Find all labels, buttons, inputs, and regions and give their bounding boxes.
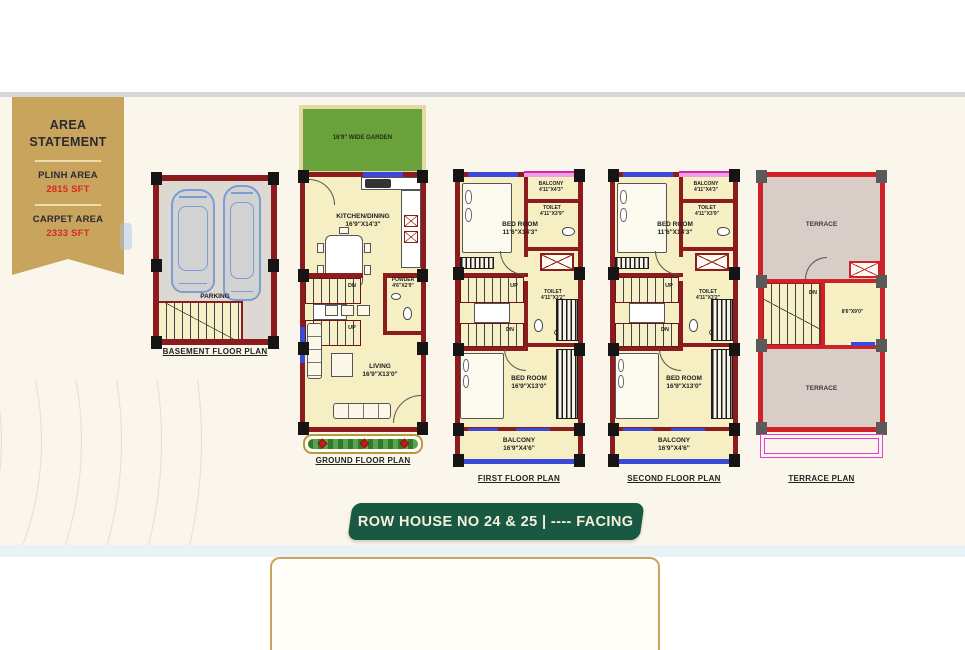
basement-floor-plan: PARKING 16'9"X21'0" bbox=[153, 175, 277, 345]
stairs-landing bbox=[629, 303, 665, 323]
up-label: UP bbox=[661, 283, 677, 289]
wardrobe bbox=[556, 299, 578, 341]
pillow bbox=[618, 359, 624, 372]
window-strip bbox=[468, 172, 518, 177]
balcony-railing bbox=[679, 171, 733, 177]
up-label: UP bbox=[506, 283, 522, 289]
car bbox=[171, 189, 215, 293]
window-strip bbox=[671, 428, 705, 431]
sink-unit bbox=[404, 231, 418, 243]
pillow bbox=[463, 359, 469, 372]
banner-text: ROW HOUSE NO 24 & 25 | ---- FACING bbox=[358, 514, 633, 530]
balcony-edge bbox=[610, 459, 738, 464]
car-hood-line bbox=[231, 192, 253, 194]
wardrobe bbox=[615, 257, 649, 269]
wardrobe bbox=[711, 299, 733, 341]
pillow bbox=[620, 190, 627, 204]
second-floor-plan: BALCONY 4'11"X4'3" TOILET 4'11"X3'9" BED… bbox=[610, 172, 738, 464]
partition-wall bbox=[528, 343, 578, 347]
cushion bbox=[341, 305, 354, 316]
brochure-page: AREA STATEMENT PLINH AREA 2815 SFT CARPE… bbox=[0, 0, 965, 650]
column bbox=[417, 269, 428, 282]
column bbox=[417, 342, 428, 355]
ground-plan-label: GROUND FLOOR PLAN bbox=[300, 456, 426, 465]
column bbox=[268, 259, 279, 272]
pillow bbox=[465, 190, 472, 204]
column bbox=[608, 343, 619, 356]
column bbox=[608, 267, 619, 280]
bedroom-label: BED ROOM 16'9"X13'0" bbox=[494, 375, 564, 392]
toilet-wc bbox=[562, 227, 575, 236]
column bbox=[151, 259, 162, 272]
column bbox=[756, 339, 767, 352]
car-cabin bbox=[230, 202, 254, 279]
door-arc bbox=[655, 251, 679, 275]
partition-wall bbox=[683, 247, 733, 251]
column bbox=[574, 343, 585, 356]
column bbox=[729, 343, 740, 356]
stairs-landing bbox=[474, 303, 510, 323]
toilet-wc bbox=[689, 319, 698, 332]
stairs bbox=[159, 301, 243, 339]
toilet-wc bbox=[717, 227, 730, 236]
window-strip bbox=[516, 428, 550, 431]
garden-label: 16'9" WIDE GARDEN bbox=[303, 135, 422, 141]
terrace-plan-label: TERRACE PLAN bbox=[758, 474, 885, 483]
terrace-label: TERRACE bbox=[763, 385, 880, 393]
car-trunk-line bbox=[231, 291, 253, 293]
partition-wall bbox=[528, 247, 578, 251]
bedroom-label: BED ROOM 11'6"X14'3" bbox=[490, 221, 550, 238]
car bbox=[223, 185, 261, 301]
second-plan-label: SECOND FLOOR PLAN bbox=[610, 474, 738, 483]
chair bbox=[364, 265, 371, 275]
partition-wall bbox=[528, 199, 578, 203]
sofa bbox=[307, 323, 322, 379]
area-statement-ribbon: AREA STATEMENT PLINH AREA 2815 SFT CARPE… bbox=[12, 97, 124, 275]
pillow bbox=[620, 208, 627, 222]
bottom-strip bbox=[0, 545, 965, 557]
open-terrace-outline bbox=[760, 434, 883, 458]
coffee-table bbox=[331, 353, 353, 377]
column bbox=[876, 339, 887, 352]
living-label: LIVING 16'9"X13'0" bbox=[345, 363, 415, 380]
bed bbox=[617, 183, 667, 253]
partition-wall bbox=[683, 199, 733, 203]
open-terrace-inner-outline bbox=[764, 438, 879, 454]
duct-shaft bbox=[540, 253, 574, 271]
down-label: DN bbox=[502, 327, 518, 333]
column bbox=[298, 422, 309, 435]
column bbox=[453, 267, 464, 280]
column bbox=[574, 423, 585, 436]
column bbox=[453, 454, 464, 467]
toilet-label: TOILET 4'11"X3'9" bbox=[681, 205, 733, 218]
column bbox=[453, 343, 464, 356]
partition-wall bbox=[383, 331, 421, 335]
down-label: DN bbox=[345, 283, 359, 289]
column bbox=[876, 170, 887, 183]
terrace-plan: TERRACE DN 8'6"X9'0" TERRACE bbox=[758, 172, 885, 432]
column bbox=[574, 169, 585, 182]
carpet-area-value: 2333 SFT bbox=[46, 228, 89, 239]
powder-sink bbox=[391, 293, 401, 300]
column bbox=[756, 275, 767, 288]
window-strip bbox=[623, 172, 673, 177]
chair bbox=[317, 243, 324, 253]
window-strip bbox=[623, 428, 653, 431]
ribbon-divider bbox=[35, 160, 101, 162]
stairs-flight bbox=[460, 277, 524, 303]
car-hood-line bbox=[179, 196, 207, 198]
bedroom-label: BED ROOM 16'9"X13'0" bbox=[649, 375, 719, 392]
stairs-flight bbox=[305, 278, 361, 304]
column bbox=[417, 422, 428, 435]
column bbox=[729, 169, 740, 182]
ground-floor-plan: KITCHEN/DINING 16'9"X14'3" DN UP POWDER … bbox=[300, 172, 426, 432]
balcony-label: BALCONY 16'9"X4'6" bbox=[625, 437, 723, 454]
kitchen-label: KITCHEN/DINING 16'9"X14'3" bbox=[313, 213, 413, 230]
column bbox=[574, 267, 585, 280]
column bbox=[608, 454, 619, 467]
down-label: DN bbox=[657, 327, 673, 333]
column bbox=[574, 454, 585, 467]
powder-room-label: POWDER 4'6"X2'9" bbox=[385, 277, 421, 290]
cushion bbox=[357, 305, 370, 316]
column bbox=[756, 170, 767, 183]
toilet-wc bbox=[534, 319, 543, 332]
toilet-label: TOILET 4'11"X3'9" bbox=[526, 205, 578, 218]
up-label: UP bbox=[345, 325, 359, 331]
first-plan-label: FIRST FLOOR PLAN bbox=[455, 474, 583, 483]
plinth-area-value: 2815 SFT bbox=[46, 184, 89, 195]
cushion bbox=[325, 305, 338, 316]
flower-planter bbox=[303, 434, 423, 454]
title-banner: ROW HOUSE NO 24 & 25 | ---- FACING bbox=[347, 503, 644, 540]
column bbox=[876, 275, 887, 288]
column bbox=[453, 423, 464, 436]
bed bbox=[462, 183, 512, 253]
chair bbox=[364, 243, 371, 253]
car-trunk-line bbox=[179, 283, 207, 285]
door-arc bbox=[504, 349, 526, 371]
column bbox=[729, 423, 740, 436]
column bbox=[729, 454, 740, 467]
column bbox=[453, 169, 464, 182]
column bbox=[268, 172, 279, 185]
column bbox=[151, 172, 162, 185]
balcony-edge bbox=[455, 459, 583, 464]
chair bbox=[339, 227, 349, 234]
first-floor-plan: BALCONY 4'11"X4'3" TOILET 4'11"X3'9" BED… bbox=[455, 172, 583, 464]
column bbox=[298, 170, 309, 183]
stairs-flight bbox=[615, 277, 679, 303]
door-arc bbox=[805, 257, 827, 279]
stove bbox=[365, 179, 391, 188]
down-label: DN bbox=[805, 290, 821, 296]
wardrobe bbox=[556, 349, 578, 419]
ribbon-divider bbox=[35, 204, 101, 206]
powder-wc bbox=[403, 307, 412, 320]
blue-artifact bbox=[120, 223, 132, 250]
pillow bbox=[463, 375, 469, 388]
door-arc bbox=[659, 349, 681, 371]
column bbox=[729, 267, 740, 280]
room-dims-label: 8'6"X9'0" bbox=[825, 309, 880, 315]
balcony-label: BALCONY 4'11"X4'3" bbox=[679, 181, 733, 194]
pillow bbox=[465, 208, 472, 222]
column bbox=[417, 170, 428, 183]
door-arc bbox=[500, 251, 524, 275]
duct-shaft bbox=[695, 253, 729, 271]
partition-wall bbox=[683, 343, 733, 347]
door-arc bbox=[393, 395, 421, 423]
window-strip bbox=[851, 342, 875, 346]
carpet-area-label: CARPET AREA bbox=[33, 214, 103, 225]
pillow bbox=[618, 375, 624, 388]
door-arc bbox=[309, 179, 335, 205]
garden-area: 16'9" WIDE GARDEN bbox=[299, 105, 426, 175]
car-cabin bbox=[178, 206, 208, 271]
column bbox=[298, 269, 309, 282]
sofa bbox=[333, 403, 391, 419]
balcony-label: BALCONY 16'9"X4'6" bbox=[470, 437, 568, 454]
cutoff-gold-box bbox=[270, 557, 660, 650]
terrace-label: TERRACE bbox=[763, 221, 880, 229]
wardrobe bbox=[460, 257, 494, 269]
bedroom-label: BED ROOM 11'6"X14'3" bbox=[645, 221, 705, 238]
column bbox=[608, 423, 619, 436]
basement-plan-label: BASEMENT FLOOR PLAN bbox=[150, 347, 280, 356]
area-statement-title: AREA STATEMENT bbox=[23, 117, 113, 151]
window-strip bbox=[468, 428, 498, 431]
wardrobe bbox=[711, 349, 733, 419]
column bbox=[608, 169, 619, 182]
balcony-railing bbox=[524, 171, 578, 177]
column bbox=[298, 342, 309, 355]
plinth-area-label: PLINH AREA bbox=[38, 170, 98, 181]
balcony-label: BALCONY 4'11"X4'3" bbox=[524, 181, 578, 194]
